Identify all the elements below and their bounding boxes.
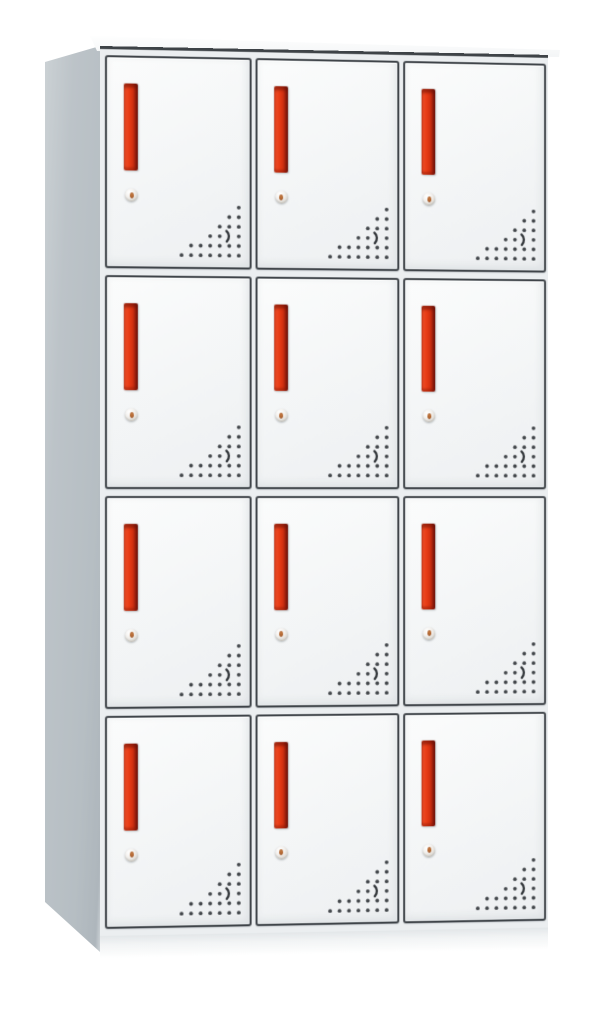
keyhole-lock-icon[interactable] xyxy=(125,848,138,861)
locker-door-r3-c3[interactable] xyxy=(403,496,546,706)
vent-holes-icon xyxy=(328,858,388,914)
door-handle-icon[interactable] xyxy=(274,523,288,609)
keyhole xyxy=(427,630,431,636)
keyhole xyxy=(279,849,283,855)
keyhole-lock-icon[interactable] xyxy=(275,409,288,422)
vent-holes-icon xyxy=(476,856,536,912)
door-handle-icon[interactable] xyxy=(422,89,436,175)
locker-door-r1-c2[interactable] xyxy=(255,58,399,271)
keyhole-lock-icon[interactable] xyxy=(423,192,436,205)
door-handle-icon[interactable] xyxy=(422,523,436,609)
locker-door-r4-c3[interactable] xyxy=(403,712,546,924)
vent-holes-icon xyxy=(179,861,240,918)
keyhole xyxy=(427,847,431,853)
keyhole-lock-icon[interactable] xyxy=(275,846,288,859)
vent-holes-icon xyxy=(476,640,536,695)
door-handle-icon[interactable] xyxy=(274,742,288,828)
locker-door-r4-c1[interactable] xyxy=(105,714,251,929)
keyhole xyxy=(427,196,431,202)
vent-holes-icon xyxy=(179,423,240,479)
keyhole xyxy=(279,412,283,418)
vent-holes-icon xyxy=(328,205,388,261)
keyhole-lock-icon[interactable] xyxy=(423,627,436,640)
keyhole-lock-icon[interactable] xyxy=(125,408,138,421)
door-handle-icon[interactable] xyxy=(274,86,288,173)
vent-holes-icon xyxy=(328,423,388,479)
keyhole-lock-icon[interactable] xyxy=(125,628,138,641)
door-handle-icon[interactable] xyxy=(274,305,288,391)
vent-holes-icon xyxy=(476,424,536,479)
door-handle-icon[interactable] xyxy=(124,523,138,610)
locker-door-r2-c2[interactable] xyxy=(255,277,399,489)
vent-holes-icon xyxy=(476,207,536,263)
door-handle-icon[interactable] xyxy=(124,743,138,830)
keyhole-lock-icon[interactable] xyxy=(275,627,288,640)
keyhole xyxy=(279,631,283,637)
keyhole-lock-icon[interactable] xyxy=(423,410,436,423)
vent-holes-icon xyxy=(179,203,240,259)
locker-door-r1-c3[interactable] xyxy=(403,61,546,273)
locker-door-r3-c2[interactable] xyxy=(255,496,399,708)
keyhole xyxy=(129,852,133,858)
doors-grid xyxy=(105,55,546,929)
keyhole xyxy=(129,632,133,638)
door-handle-icon[interactable] xyxy=(422,740,436,826)
keyhole xyxy=(129,412,133,418)
vent-holes-icon xyxy=(328,641,388,697)
keyhole xyxy=(427,413,431,419)
vent-holes-icon xyxy=(179,642,240,698)
locker-door-r1-c1[interactable] xyxy=(105,55,251,270)
locker-cabinet-photo xyxy=(0,0,605,1009)
cabinet-front-face xyxy=(100,46,548,958)
keyhole-lock-icon[interactable] xyxy=(423,844,436,857)
locker-door-r4-c2[interactable] xyxy=(255,713,399,926)
locker-door-r2-c3[interactable] xyxy=(403,278,546,489)
keyhole-lock-icon[interactable] xyxy=(125,188,138,201)
door-handle-icon[interactable] xyxy=(124,83,138,170)
keyhole xyxy=(129,192,133,198)
cabinet-left-side-panel xyxy=(44,36,101,956)
keyhole-lock-icon[interactable] xyxy=(275,190,288,203)
keyhole xyxy=(279,194,283,200)
cabinet-base-plinth xyxy=(100,928,548,958)
locker-door-r2-c1[interactable] xyxy=(105,275,251,488)
door-handle-icon[interactable] xyxy=(422,306,436,392)
door-handle-icon[interactable] xyxy=(124,303,138,390)
locker-door-r3-c1[interactable] xyxy=(105,496,251,709)
